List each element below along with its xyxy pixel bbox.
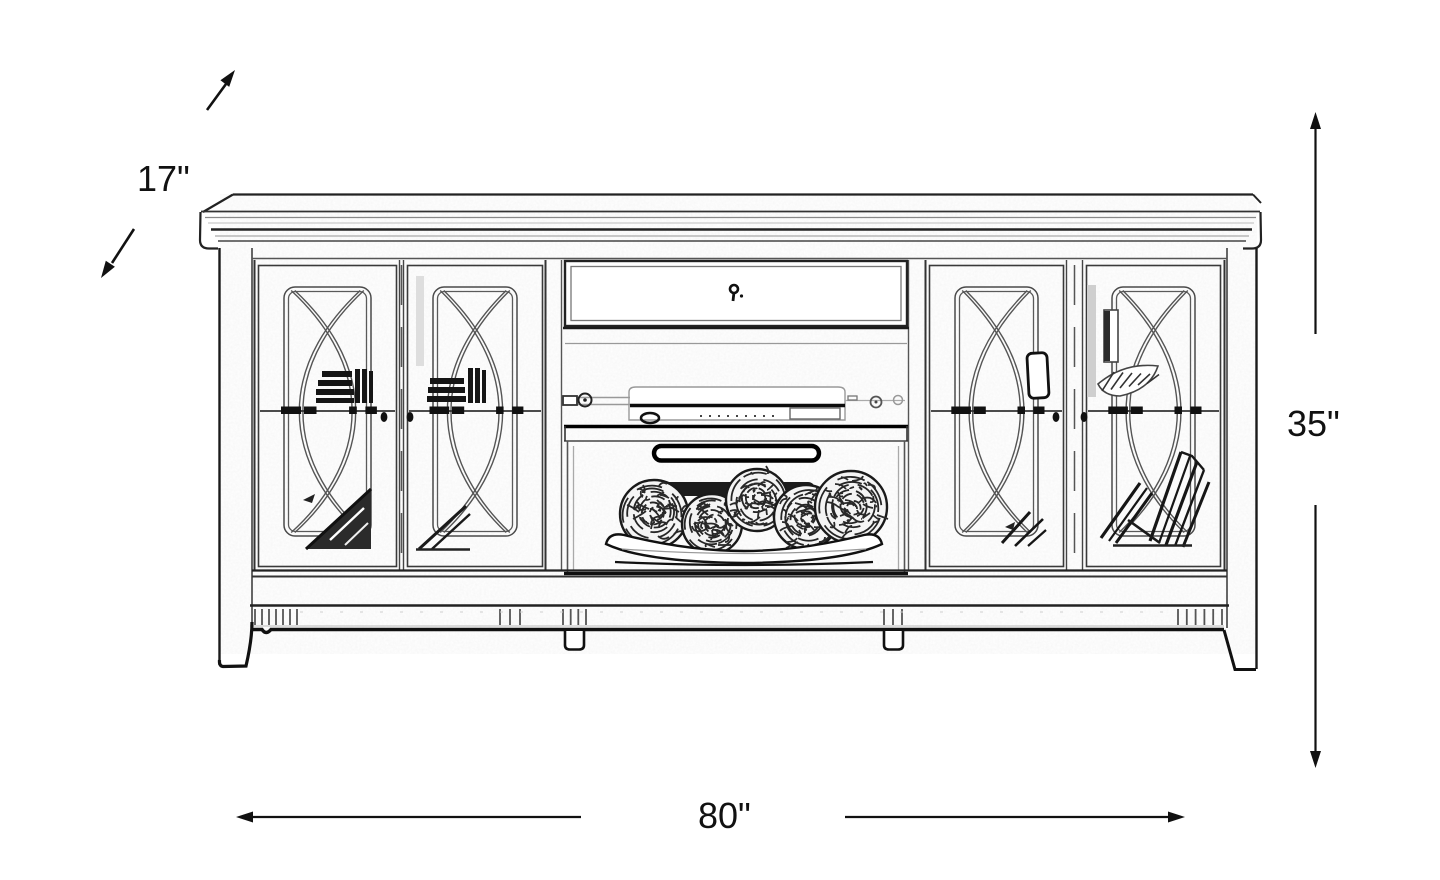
- svg-text:17": 17": [137, 158, 190, 199]
- svg-text:35": 35": [1287, 403, 1340, 444]
- svg-text:80": 80": [698, 795, 751, 836]
